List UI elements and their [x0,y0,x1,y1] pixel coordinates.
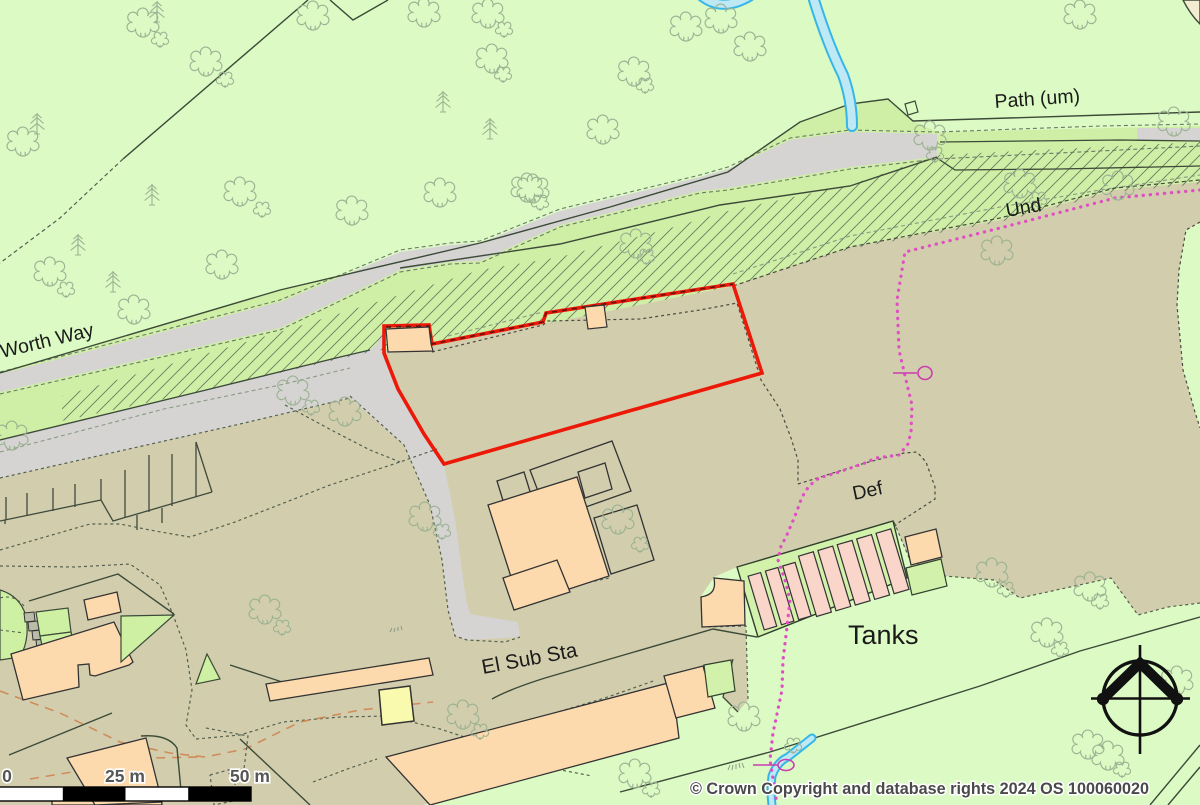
svg-text:© Crown Copyright and database: © Crown Copyright and database rights 20… [690,780,1149,798]
svg-text:25 m: 25 m [105,766,145,786]
svg-text:Tanks: Tanks [848,620,919,650]
svg-text:0: 0 [2,766,12,786]
svg-text:50 m: 50 m [230,766,270,786]
